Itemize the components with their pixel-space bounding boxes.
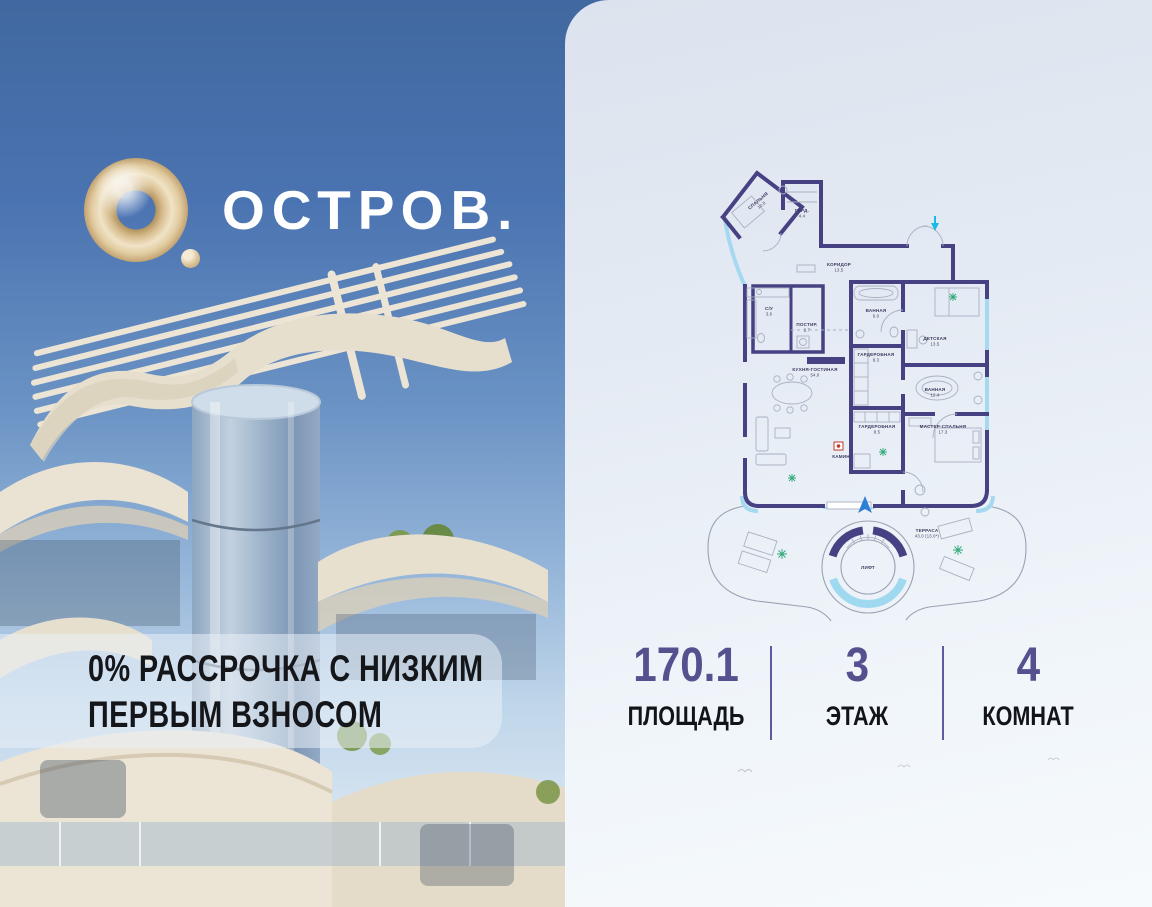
room-label-fireplace: КАМИН [832, 454, 850, 459]
room-label-kitchen-living: КУХНЯ-ГОСТИНАЯ54.0 [792, 367, 837, 377]
room-label-closet-1: ГАРДЕРОБНАЯ8.3 [858, 352, 895, 362]
room-label-corridor: КОРИДОР13.5 [827, 262, 851, 272]
stat-rooms-label: КОМНАТ [983, 701, 1074, 732]
promo-line-2: ПЕРВЫМ ВЗНОСОМ [88, 692, 411, 738]
bird-icon [737, 766, 753, 773]
stat-floor-label: ЭТАЖ [826, 701, 888, 732]
building-photo: ОСТРОВ. 0% РАССРОЧКА С НИЗКИМ ПЕРВЫМ ВЗН… [0, 0, 600, 907]
fireplace-icon [834, 442, 843, 450]
room-label-bedroom: СПАЛЬНЯ10.8 [747, 191, 772, 215]
promo-banner: 0% РАССРОЧКА С НИЗКИМ ПЕРВЫМ ВЗНОСОМ [0, 634, 502, 748]
gold-ring-icon [84, 158, 188, 262]
promo-line-1: 0% РАССРОЧКА С НИЗКИМ [88, 646, 411, 692]
building-illustration [0, 0, 600, 907]
stat-rooms: 4 КОМНАТ [944, 634, 1113, 754]
brand-logo: ОСТРОВ. [84, 158, 519, 262]
stat-floor-value: 3 [845, 638, 868, 693]
entry-arrow-icon [931, 216, 939, 231]
floor-plan: СПАЛЬНЯ10.8ГАРД.4.4КОРИДОР13.5С/У3.6ПОСТ… [695, 160, 1040, 615]
room-label-elevator: ЛИФТ [861, 565, 875, 570]
apartment-card: ОСТРОВ. 0% РАССРОЧКА С НИЗКИМ ПЕРВЫМ ВЗН… [0, 0, 1152, 907]
room-label-terrace: ТЕРРАСА43.0 (13.0*) [915, 528, 940, 538]
stat-rooms-value: 4 [1017, 638, 1040, 693]
room-label-bath-1: ВАННАЯ6.0 [866, 308, 887, 318]
stat-area-value: 170.1 [633, 638, 739, 693]
brand-name: ОСТРОВ. [222, 178, 519, 242]
room-label-bath-2: ВАННАЯ12.4 [925, 387, 946, 397]
stat-area-label: ПЛОЩАДЬ [627, 701, 744, 732]
bird-icon [1047, 755, 1060, 761]
stat-floor: 3 ЭТАЖ [772, 634, 941, 754]
bird-icon [897, 762, 911, 768]
room-label-master-bedroom: МАСТЕР-СПАЛЬНЯ17.3 [920, 424, 967, 434]
gold-dot-icon [181, 249, 200, 268]
apartment-stats: 170.1 ПЛОЩАДЬ 3 ЭТАЖ 4 КОМНАТ [601, 634, 1113, 754]
stat-area: 170.1 ПЛОЩАДЬ [601, 634, 770, 754]
room-label-closet-2: ГАРДЕРОБНАЯ8.5 [859, 424, 896, 434]
room-label-laundry: ПОСТИР.2.7 [796, 322, 817, 332]
room-label-wc: С/У3.6 [765, 306, 773, 316]
info-panel: СПАЛЬНЯ10.8ГАРД.4.4КОРИДОР13.5С/У3.6ПОСТ… [565, 0, 1152, 907]
